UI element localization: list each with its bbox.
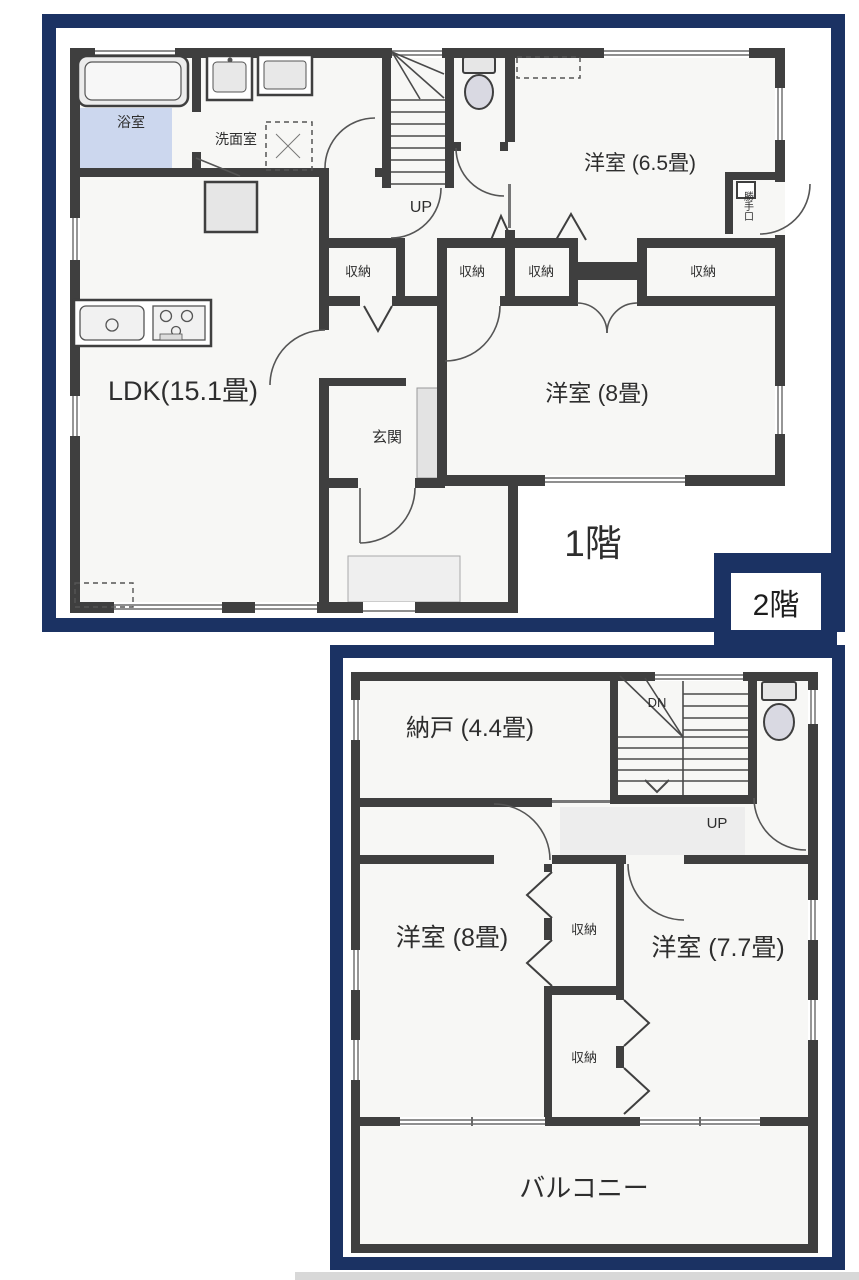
toilet-2f-icon [762, 682, 796, 740]
floor1-title: 1階 [564, 523, 622, 564]
stairs-up-label-2f: UP [707, 815, 728, 832]
floor1-frame: 浴室 洗面室 UP 洋室 (6.5畳) 勝手口 収納 収納 収納 収納 LDK(… [42, 14, 845, 632]
closet-label-1f-2: 収納 [459, 264, 485, 279]
floor2-plan: 納戸 (4.4畳) DN UP 洋室 (8畳) 収納 収納 洋室 (7.7畳) … [343, 658, 832, 1257]
closet-label-1f-4: 収納 [690, 264, 716, 279]
closet-label-1f-3: 収納 [528, 264, 554, 279]
stairs-up-label-1f: UP [410, 199, 432, 216]
room-label-ldk: LDK(15.1畳) [108, 376, 258, 406]
room-label-western-6-5: 洋室 (6.5畳) [584, 152, 696, 175]
room-label-western-8-1f: 洋室 (8畳) [545, 380, 649, 406]
storage-sliding-door [552, 800, 610, 803]
room-label-washroom: 洗面室 [215, 131, 257, 147]
floor2-title: 2階 [753, 580, 800, 624]
closet-label-2f-2: 収納 [571, 1050, 597, 1065]
room-label-western-7-7: 洋室 (7.7畳) [651, 934, 784, 962]
backdoor-label: 勝手口 [742, 190, 754, 221]
room-label-bath: 浴室 [117, 114, 145, 130]
closet-label-2f-1: 収納 [571, 922, 597, 937]
toilet-icon [463, 57, 495, 73]
balcony-label: バルコニー [519, 1173, 648, 1203]
floorplan-canvas: 浴室 洗面室 UP 洋室 (6.5畳) 勝手口 収納 収納 収納 収納 LDK(… [0, 0, 859, 1280]
fridge-box [205, 182, 257, 232]
porch-step [348, 556, 460, 602]
floor2-badge: 2階 [714, 553, 837, 647]
stairs-dn-label: DN [648, 695, 667, 710]
room-label-entrance: 玄関 [372, 429, 402, 446]
floor1-plan: 浴室 洗面室 UP 洋室 (6.5畳) 勝手口 収納 収納 収納 収納 LDK(… [56, 28, 831, 618]
room-label-storage-room: 納戸 (4.4畳) [406, 715, 534, 742]
floor2-frame: 納戸 (4.4畳) DN UP 洋室 (8畳) 収納 収納 洋室 (7.7畳) … [330, 645, 845, 1270]
closet-label-1f-1: 収納 [345, 264, 371, 279]
room-label-western-8-2f: 洋室 (8畳) [396, 924, 509, 952]
bottom-edge-strip [295, 1272, 859, 1280]
